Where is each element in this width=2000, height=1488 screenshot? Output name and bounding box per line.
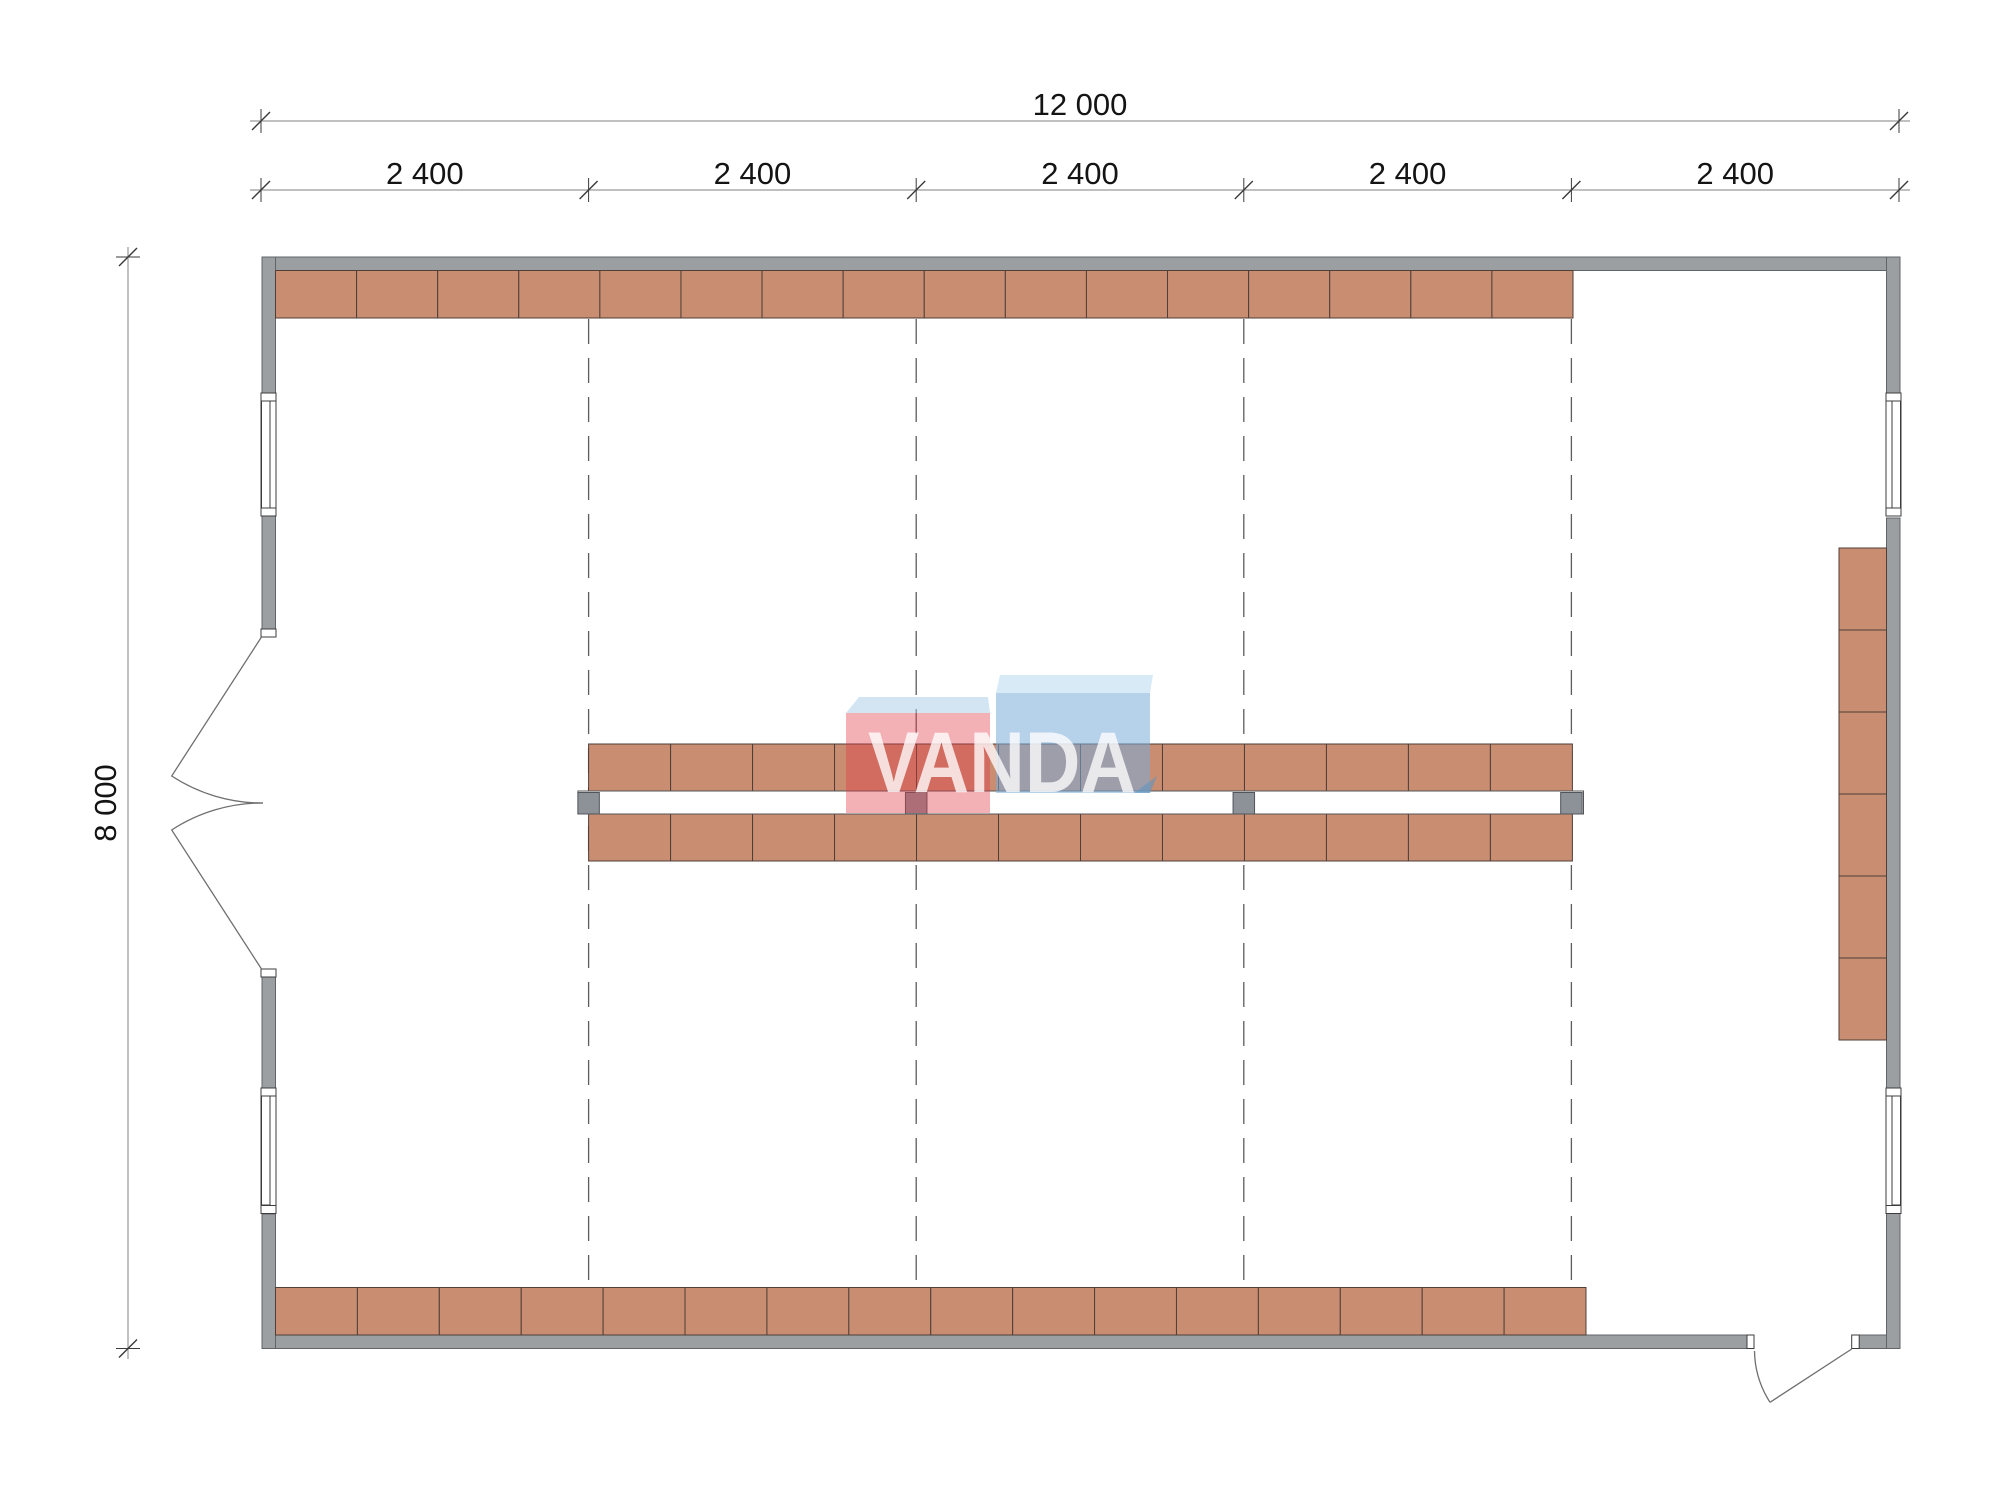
bottom-wall-rack-segment <box>1013 1288 1095 1336</box>
center-rack-south-segment <box>589 814 671 861</box>
wall-left-segment-3 <box>262 977 276 1088</box>
top-wall-rack-segment <box>681 271 762 319</box>
window-left-lower <box>261 1088 276 1214</box>
bottom-wall-rack-segment <box>1095 1288 1177 1336</box>
top-wall-rack-segment <box>924 271 1005 319</box>
bottom-wall-rack-segment <box>603 1288 685 1336</box>
wall-right-segment-1 <box>1887 257 1901 393</box>
top-wall-rack-segment <box>1330 271 1411 319</box>
bottom-wall-rack-segment <box>276 1288 358 1336</box>
center-rack-south-segment <box>1490 814 1572 861</box>
top-wall-rack-segment <box>438 271 519 319</box>
top-wall-rack-segment <box>762 271 843 319</box>
top-wall-rack-segment <box>519 271 600 319</box>
door-jamb <box>1852 1335 1860 1349</box>
right-wall-rack-segment <box>1839 876 1887 958</box>
door-leaf <box>1770 1349 1852 1402</box>
bottom-wall-rack-segment <box>1258 1288 1340 1336</box>
right-wall-rack-segment <box>1839 630 1887 712</box>
center-rack-south-segment <box>999 814 1081 861</box>
right-wall-rack-segment <box>1839 958 1887 1040</box>
top-wall-rack-segment <box>843 271 924 319</box>
steel-column <box>1561 793 1583 815</box>
door-jamb <box>261 969 276 977</box>
bay-width-label: 2 400 <box>714 156 792 191</box>
window-glass <box>262 1096 271 1205</box>
bottom-wall-rack-segment <box>439 1288 521 1336</box>
steel-column <box>1233 793 1255 815</box>
center-rack-north-segment <box>1244 744 1326 792</box>
wall-right-segment-3 <box>1887 1213 1901 1349</box>
center-rack-north-segment <box>753 744 835 792</box>
right-wall-rack-segment <box>1839 548 1887 630</box>
door-leaf-lower <box>172 803 263 969</box>
center-rack-south-segment <box>917 814 999 861</box>
center-rack-south-segment <box>1244 814 1326 861</box>
window-glass <box>1892 401 1901 508</box>
watermark-blue-box-top <box>996 675 1153 693</box>
right-wall-rack-segment <box>1839 794 1887 876</box>
top-wall-rack-segment <box>1411 271 1492 319</box>
wall-bottom-left <box>262 1335 1747 1349</box>
center-rack-north-segment <box>1490 744 1572 792</box>
center-rack-north-segment <box>671 744 753 792</box>
center-rack-south-segment <box>835 814 917 861</box>
bottom-wall-rack-segment <box>1422 1288 1504 1336</box>
dimension-overall-height: 8 000 <box>88 247 128 1359</box>
top-wall-rack-segment <box>1168 271 1249 319</box>
right-wall-rack-segment <box>1839 712 1887 794</box>
center-rack-south-segment <box>671 814 753 861</box>
door-jamb <box>261 629 276 637</box>
window-left-upper <box>261 393 276 516</box>
center-rack-south-segment <box>753 814 835 861</box>
bottom-wall-rack-segment <box>357 1288 439 1336</box>
center-rack-north-segment <box>1408 744 1490 792</box>
vanda-watermark: VANDA <box>846 675 1157 813</box>
floor-plan-page: 12 000 2 400 2 400 2 400 2 400 2 400 8 0… <box>0 0 2000 1488</box>
steel-column <box>578 793 600 815</box>
bottom-wall-rack-segment <box>1504 1288 1586 1336</box>
wall-left-segment-1 <box>262 257 276 393</box>
window-right-lower <box>1886 1088 1901 1214</box>
center-rack-south-segment <box>1162 814 1244 861</box>
center-rack-south-segment <box>1081 814 1163 861</box>
floor-plan-drawing: 12 000 2 400 2 400 2 400 2 400 2 400 8 0… <box>0 0 2000 1488</box>
window-glass <box>1892 1096 1901 1205</box>
center-rack-north-segment <box>589 744 671 792</box>
wall-right-segment-2 <box>1887 518 1901 1088</box>
bay-width-label: 2 400 <box>1041 156 1119 191</box>
overall-height-label: 8 000 <box>88 764 123 842</box>
bay-width-label: 2 400 <box>1696 156 1774 191</box>
dimension-overall-width: 12 000 <box>250 87 1910 122</box>
top-wall-rack-segment <box>357 271 438 319</box>
bay-width-label: 2 400 <box>1369 156 1447 191</box>
center-rack-south-segment <box>1408 814 1490 861</box>
bay-width-label: 2 400 <box>386 156 464 191</box>
center-rack-north-segment <box>1326 744 1408 792</box>
bottom-wall-rack-segment <box>1340 1288 1422 1336</box>
wall-left-segment-4 <box>262 1214 276 1349</box>
bottom-wall-rack-segment <box>685 1288 767 1336</box>
top-wall-rack-segment <box>276 271 357 319</box>
window-glass <box>262 401 271 508</box>
bottom-wall-rack-segment <box>521 1288 603 1336</box>
overall-width-label: 12 000 <box>1033 87 1128 122</box>
door-jamb <box>1747 1335 1754 1349</box>
center-rack-south-segment <box>1326 814 1408 861</box>
door-bottom-right <box>1747 1335 1859 1402</box>
bottom-wall-rack-segment <box>767 1288 849 1336</box>
window-right-upper <box>1886 393 1901 516</box>
top-wall-rack-segment <box>600 271 681 319</box>
watermark-pink-box-top <box>846 697 990 713</box>
top-wall-rack-segment <box>1086 271 1167 319</box>
door-leaf-upper <box>172 637 263 803</box>
top-wall-rack-segment <box>1249 271 1330 319</box>
bottom-wall-rack-segment <box>849 1288 931 1336</box>
wall-top <box>262 257 1900 271</box>
watermark-text: VANDA <box>868 715 1136 811</box>
top-wall-rack-segment <box>1005 271 1086 319</box>
center-rack-north-segment <box>1162 744 1244 792</box>
bottom-wall-rack-segment <box>931 1288 1013 1336</box>
dimension-bays: 2 400 2 400 2 400 2 400 2 400 <box>250 156 1910 191</box>
double-door-left <box>172 629 276 977</box>
top-wall-rack-segment <box>1492 271 1573 319</box>
wall-left-segment-2 <box>262 515 276 629</box>
bottom-wall-rack-segment <box>1176 1288 1258 1336</box>
door-swing-arc <box>1755 1351 1771 1402</box>
